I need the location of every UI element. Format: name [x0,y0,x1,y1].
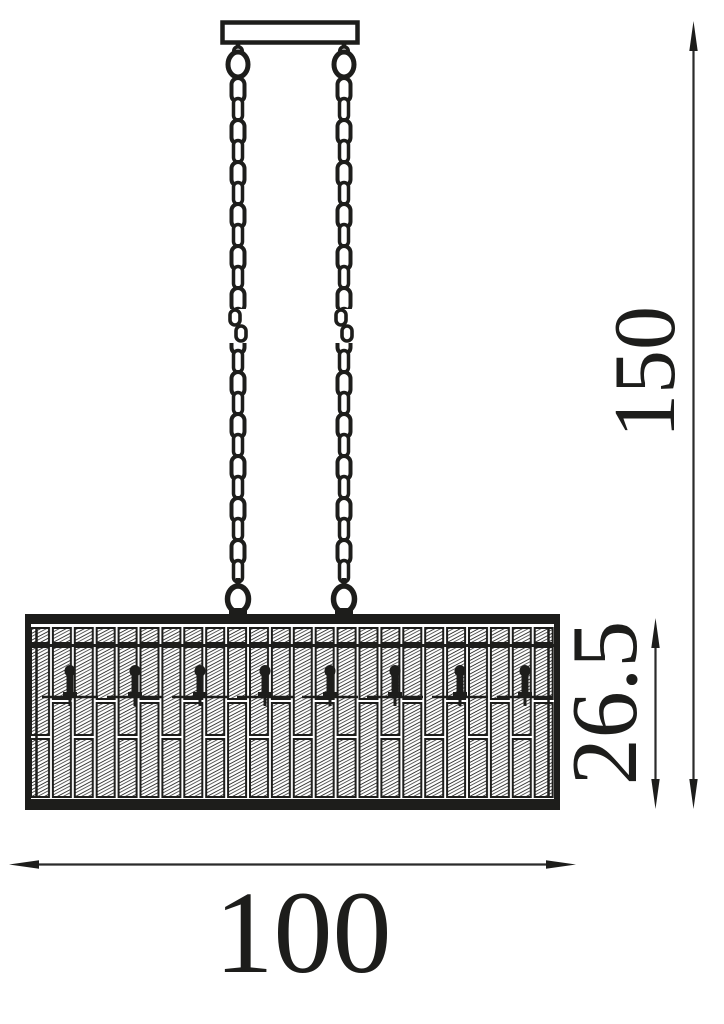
crystal-shade [25,614,560,810]
drawing-canvas: 150 26.5 100 [0,0,724,1024]
ceiling-mount-plate [223,23,358,43]
crystal-curtain [30,627,555,800]
dimension-label-shade-height: 26.5 [558,621,652,786]
left-suspension-chain [228,42,249,618]
dimension-label-width: 100 [215,874,392,992]
dimension-label-overall-height: 150 [602,306,690,438]
right-suspension-chain [334,42,355,618]
